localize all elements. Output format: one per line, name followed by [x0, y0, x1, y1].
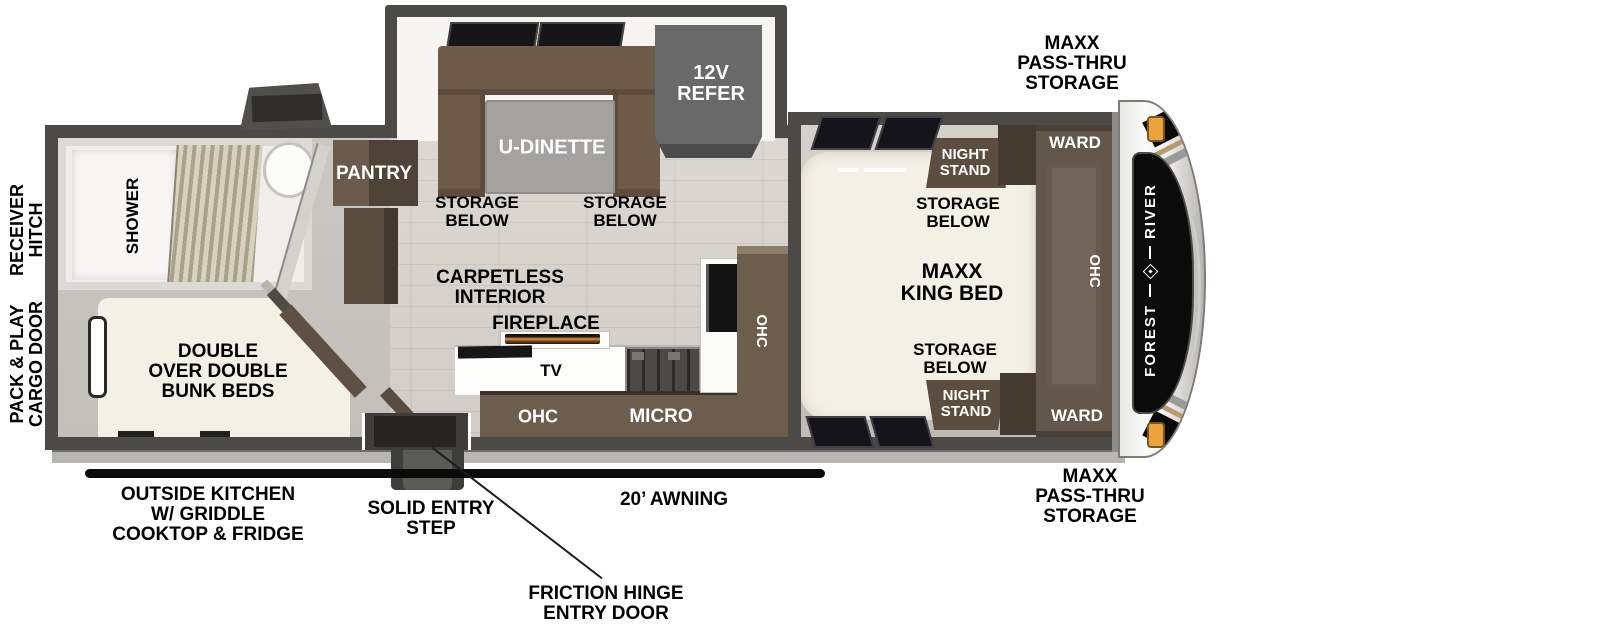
label-storage-below-bed-bottom: STORAGE BELOW — [913, 341, 997, 377]
label-night-stand-bottom: NIGHT STAND — [941, 388, 992, 420]
marker-light-icon — [1147, 422, 1165, 448]
label-storage-below: STORAGE BELOW — [583, 194, 667, 230]
bedroom-window-bottom — [805, 416, 874, 448]
bedroom-step-bottom — [1000, 373, 1036, 435]
bedroom-wall-trim — [864, 168, 906, 172]
entry-door-floor — [374, 416, 456, 447]
label-micro: MICRO — [629, 407, 692, 427]
tv-icon — [458, 345, 532, 358]
label-double-bunk-beds: DOUBLE OVER DOUBLE BUNK BEDS — [148, 342, 287, 402]
wall-bottom — [45, 437, 1125, 450]
bedroom-step-top — [998, 125, 1036, 185]
label-maxx-king-bed: MAXX KING BED — [901, 261, 1004, 306]
label-carpetless-interior: CARPETLESS INTERIOR — [436, 268, 564, 308]
wall-kitchen-bedroom-divider — [788, 112, 801, 450]
dinette-bench-left-arm — [438, 95, 485, 197]
wall-top-left — [45, 125, 390, 138]
bedroom-window-bottom — [869, 416, 934, 448]
label-awning: 20’ AWNING — [620, 490, 728, 510]
dinette-bench-right-arm — [613, 95, 660, 197]
cap-swoosh — [1172, 214, 1201, 364]
label-12v-refer: 12V REFER — [677, 63, 745, 105]
cooktop-knob — [668, 352, 680, 360]
bedroom-window-top — [810, 116, 881, 150]
label-fireplace: FIREPLACE — [492, 314, 600, 334]
brand-dash-icon — [1149, 246, 1151, 259]
floorplan-canvas: FOREST RIVER MAXX PASS-THRU STORAGE MAXX… — [0, 0, 1600, 626]
label-ward-bottom: WARD — [1051, 407, 1103, 425]
label-receiver-hitch: RECEIVER HITCH — [8, 184, 46, 276]
brand-diamond-icon — [1142, 264, 1158, 280]
label-pack-play-cargo-door: PACK & PLAY CARGO DOOR — [8, 301, 46, 427]
label-u-dinette: U-DINETTE — [499, 137, 606, 158]
label-maxx-pass-thru-storage-top: MAXX PASS-THRU STORAGE — [1017, 34, 1126, 94]
front-cap: FOREST RIVER — [1118, 100, 1206, 458]
cooktop-knob — [632, 352, 644, 360]
kitchen-side-panel — [706, 264, 737, 332]
shower-curtain — [167, 145, 263, 282]
roof-accessory-inner — [252, 94, 323, 122]
pantry-lower-cabinet — [344, 208, 398, 304]
label-ward-top: WARD — [1049, 134, 1101, 152]
label-ohc-bedroom: OHC — [1086, 254, 1102, 287]
wall-left — [45, 125, 58, 450]
label-ohc-kitchen: OHC — [518, 407, 558, 426]
label-storage-below: STORAGE BELOW — [435, 194, 519, 230]
label-storage-below-bed-top: STORAGE BELOW — [916, 195, 1000, 231]
label-maxx-pass-thru-storage-bottom: MAXX PASS-THRU STORAGE — [1035, 467, 1144, 527]
dinette-bench-back — [438, 46, 660, 95]
label-friction-hinge-entry-door: FRICTION HINGE ENTRY DOOR — [528, 584, 683, 624]
label-shower: SHOWER — [124, 178, 142, 255]
label-pantry: PANTRY — [336, 164, 412, 184]
label-solid-entry-step: SOLID ENTRY STEP — [367, 499, 494, 539]
brand-dash-icon — [1149, 284, 1151, 297]
label-tv: TV — [540, 362, 562, 380]
bunk-ladder-icon — [88, 316, 107, 398]
fireplace-insert-icon — [505, 334, 600, 344]
label-night-stand-top: NIGHT STAND — [940, 147, 991, 179]
awning-line — [85, 469, 825, 478]
kitchen-ohc-cabinet-top — [737, 246, 788, 254]
label-outside-kitchen: OUTSIDE KITCHEN W/ GRIDDLE COOKTOP & FRI… — [112, 485, 303, 545]
brand-word-river: RIVER — [1142, 183, 1159, 239]
body-skirt — [52, 450, 1125, 463]
marker-light-icon — [1147, 116, 1165, 142]
brand-logo: FOREST RIVER — [1139, 160, 1161, 400]
label-ohc-kitchen-side: OHC — [753, 314, 769, 347]
bedroom-window-top — [874, 116, 943, 150]
bedroom-wall-trim — [838, 168, 858, 172]
brand-word-forest: FOREST — [1142, 304, 1159, 377]
